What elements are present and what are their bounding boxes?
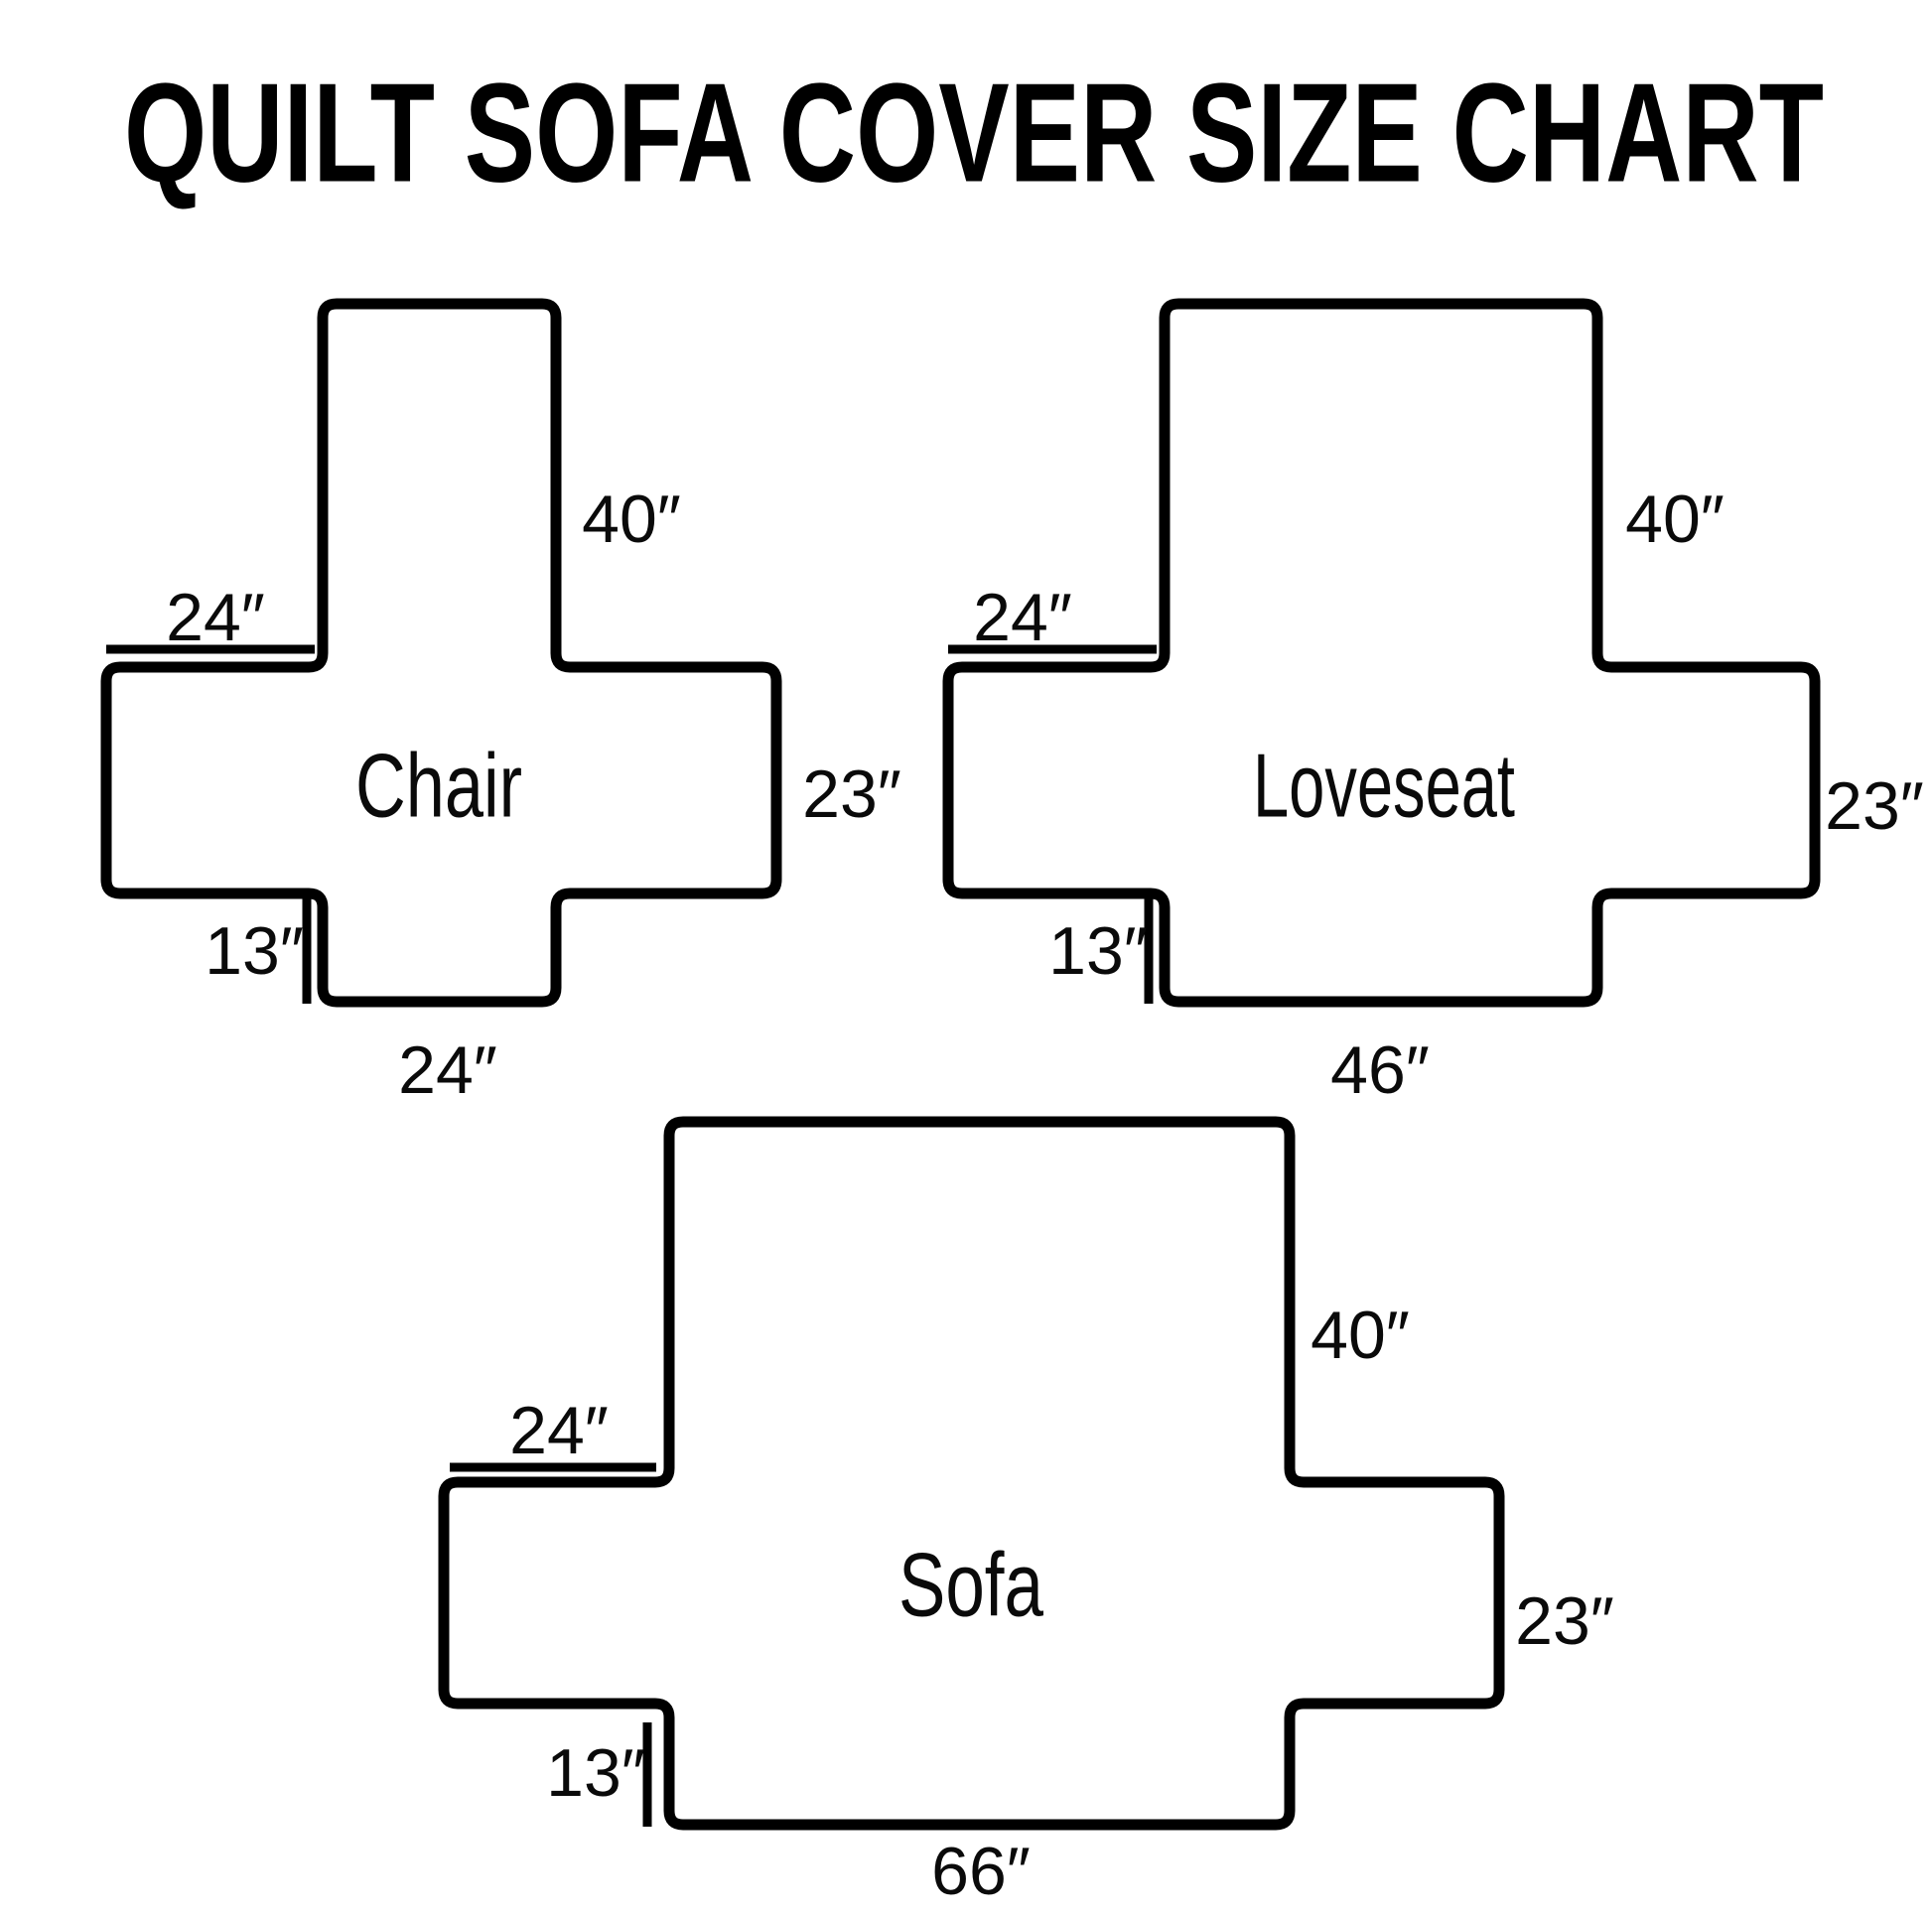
size-chart-page: QUILT SOFA COVER SIZE CHART 40″ 24″ Chai… (0, 0, 1932, 1918)
sofa-back-height-label: 40″ (1311, 1298, 1410, 1373)
figure-chair: 40″ 24″ Chair 23″ 13″ 24″ (106, 304, 901, 1108)
chair-name-label: Chair (355, 737, 522, 837)
loveseat-seat-depth-label: 23″ (1825, 768, 1924, 844)
loveseat-name-label: Loveseat (1253, 737, 1515, 837)
loveseat-flap-height-label: 13″ (1048, 913, 1148, 989)
sofa-cover-outline (444, 1122, 1499, 1825)
loveseat-back-height-label: 40″ (1625, 481, 1725, 557)
chair-bottom-width-label: 24″ (398, 1032, 497, 1108)
chair-top-width-label: 24″ (166, 580, 265, 655)
sofa-flap-height-label: 13″ (546, 1735, 645, 1811)
loveseat-top-width-label: 24″ (973, 580, 1072, 655)
chair-flap-height-label: 13″ (205, 913, 304, 989)
size-chart-canvas: QUILT SOFA COVER SIZE CHART 40″ 24″ Chai… (0, 0, 1932, 1918)
sofa-name-label: Sofa (898, 1536, 1043, 1636)
loveseat-bottom-width-label: 46″ (1330, 1032, 1430, 1108)
chair-seat-depth-label: 23″ (802, 756, 901, 832)
figure-sofa: 40″ 24″ Sofa 23″ 13″ 66″ (444, 1122, 1614, 1909)
sofa-bottom-width-label: 66″ (931, 1834, 1031, 1909)
sofa-top-width-label: 24″ (509, 1393, 609, 1468)
sofa-seat-depth-label: 23″ (1515, 1583, 1614, 1659)
page-title: QUILT SOFA COVER SIZE CHART (124, 55, 1824, 212)
figure-loveseat: 40″ 24″ Loveseat 23″ 13″ 46″ (948, 304, 1924, 1108)
chair-back-height-label: 40″ (582, 481, 681, 557)
